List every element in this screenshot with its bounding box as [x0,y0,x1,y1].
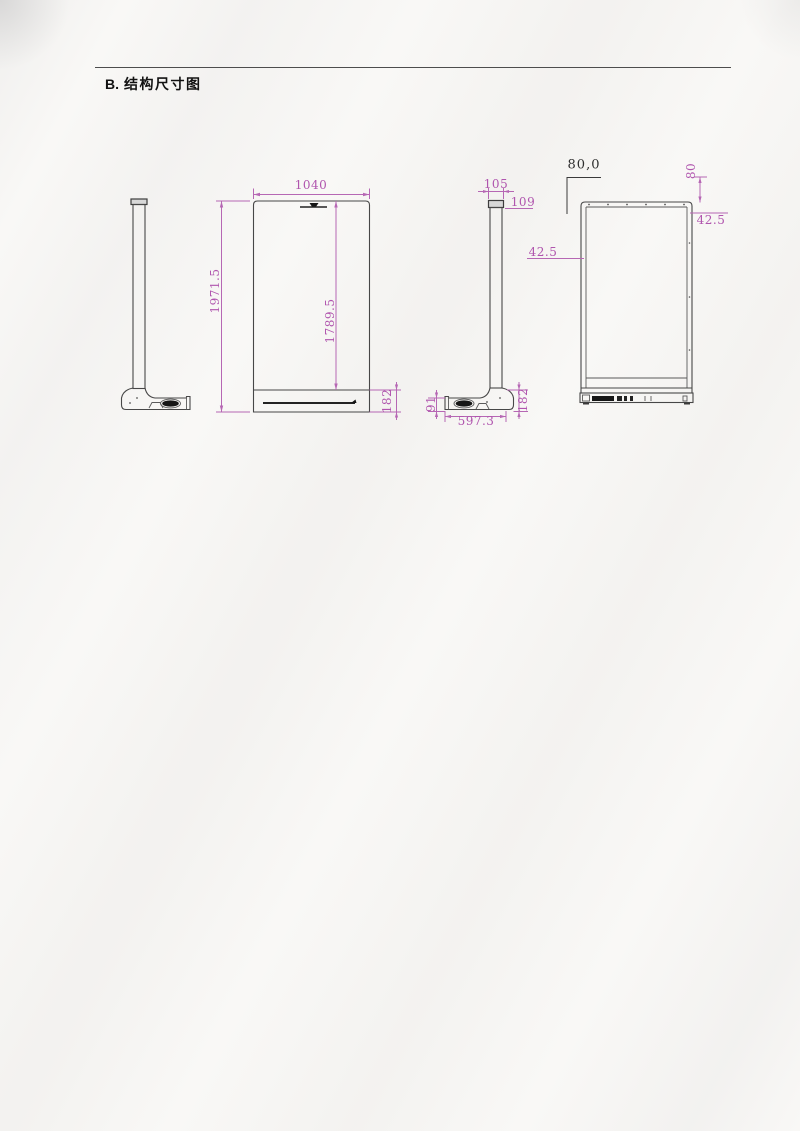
dim-front-height: 1971.5 [209,269,221,314]
dim-side-pole-width: 105 [484,178,508,190]
dim-side-cap-depth: 109 [511,196,535,208]
dim-rear-hole-pitch: 80,0 [568,159,601,172]
section-letter: B. [105,76,119,92]
dim-side-base-depth: 597.3 [458,415,495,427]
dim-side-base-height: 182 [517,388,529,412]
heading-rule [95,67,731,68]
document-page: B.结构尺寸图 [0,0,800,1131]
dim-front-width: 1040 [295,179,328,191]
dim-front-screen-height: 1789.5 [324,299,336,344]
dim-front-base-height: 182 [381,389,393,413]
dim-rear-right-offset: 42.5 [697,214,726,226]
dim-rear-left-offset: 42.5 [529,246,558,258]
dim-rear-top-offset: 80 [685,163,697,179]
dim-side-base-front-height: 91 [425,396,437,412]
rear-view-drawing [520,140,745,432]
section-title: 结构尺寸图 [124,76,202,92]
section-heading: B.结构尺寸图 [105,74,202,94]
